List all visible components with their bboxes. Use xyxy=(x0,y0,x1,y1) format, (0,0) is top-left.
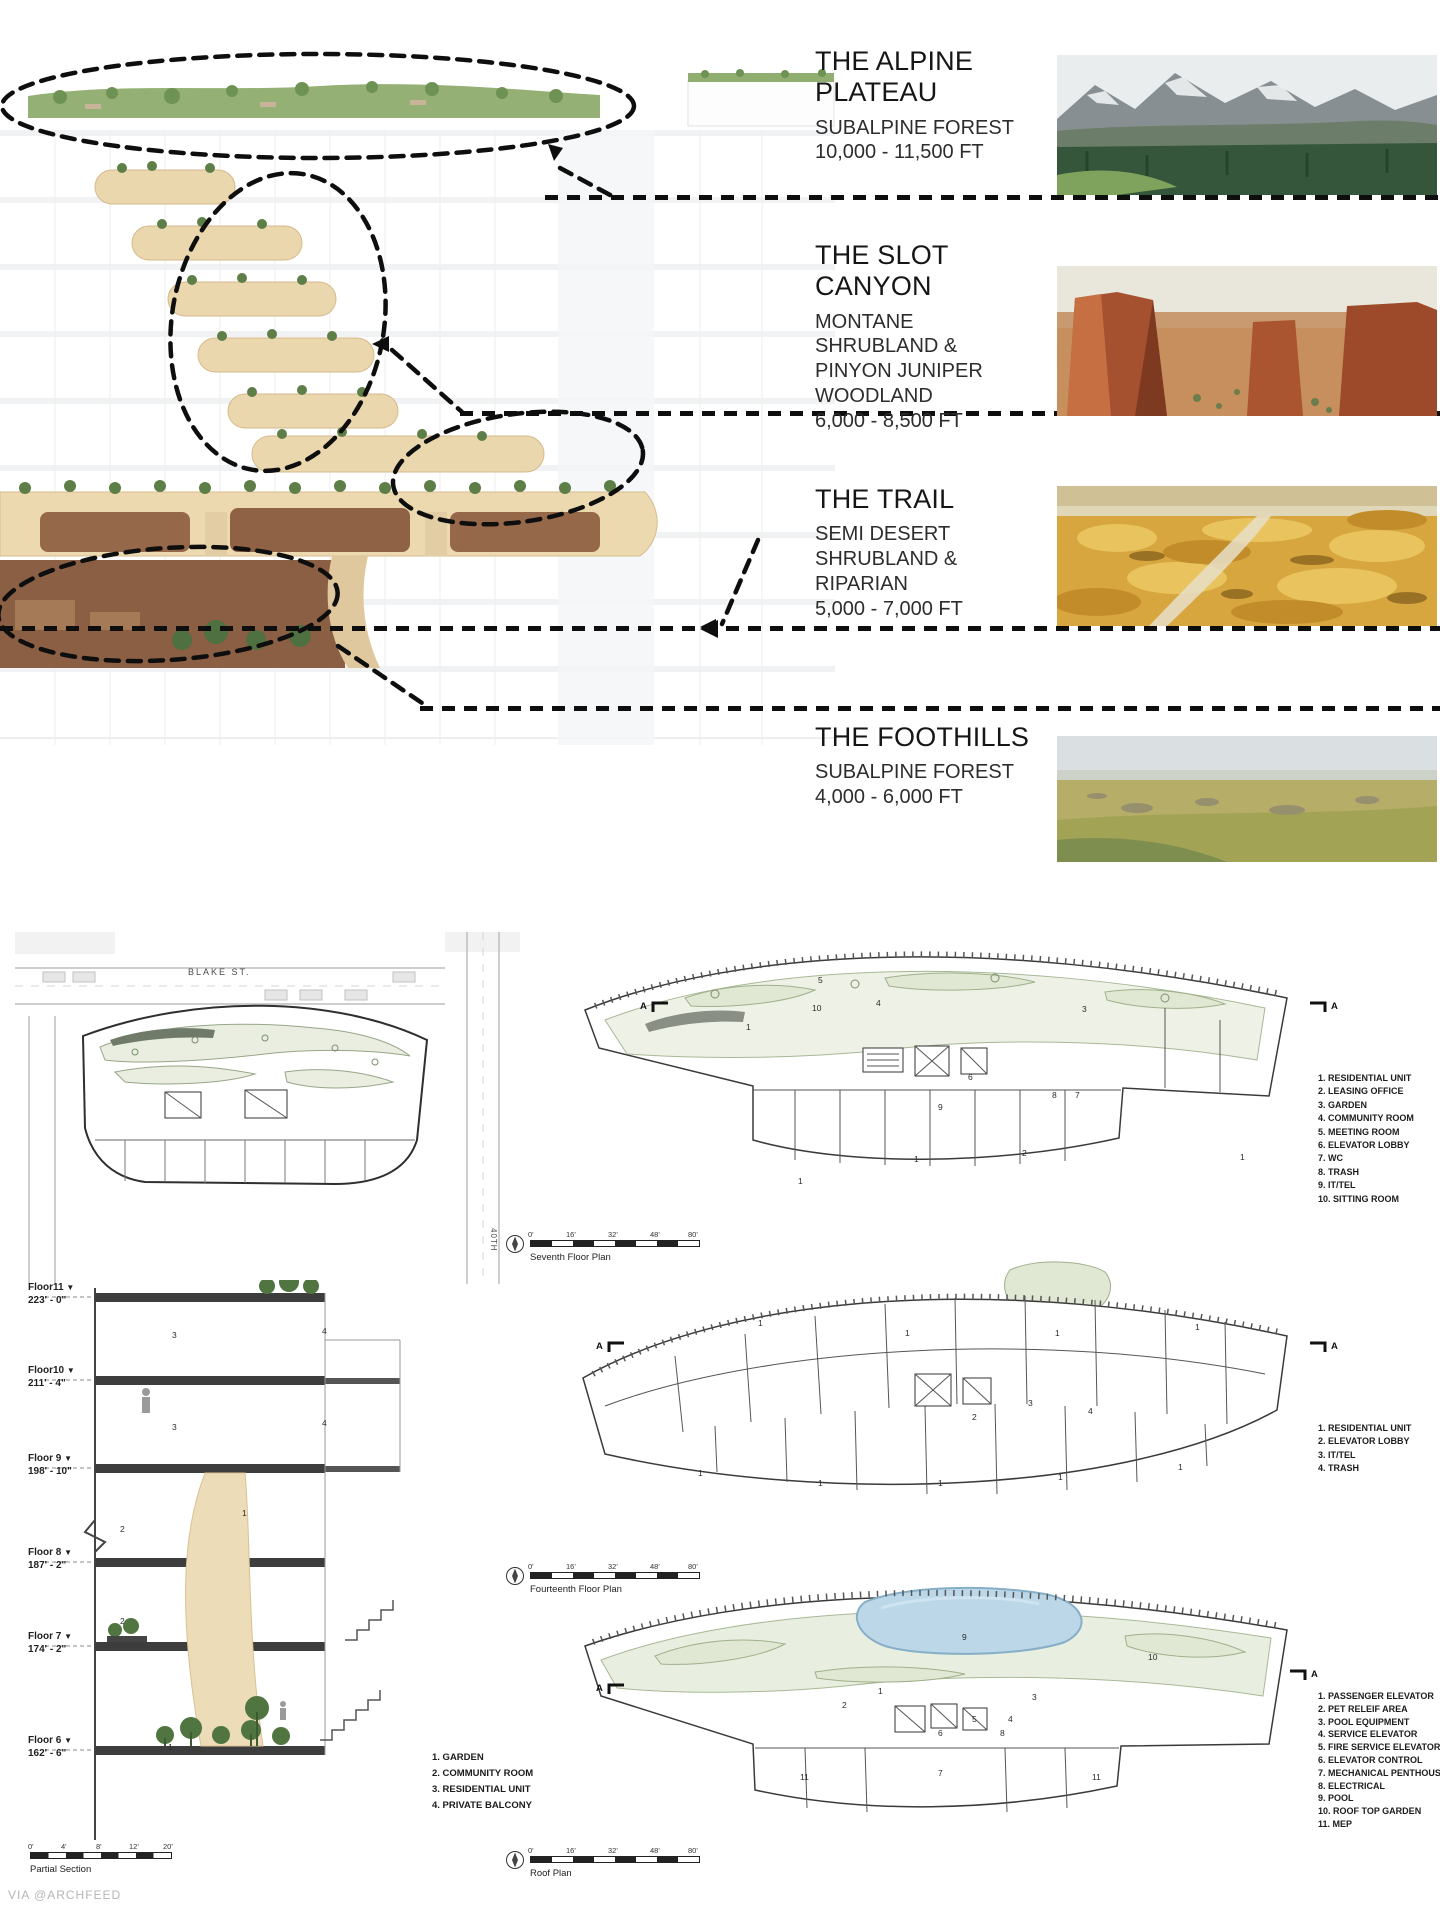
zone-title: THE ALPINE PLATEAU xyxy=(815,46,1033,109)
legend-item: 10. ROOF TOP GARDEN xyxy=(1318,1805,1440,1818)
room-number: 11 xyxy=(1092,1772,1101,1782)
level-marker-icon: ▼ xyxy=(67,1366,75,1375)
floor-name: Floor11 xyxy=(28,1282,64,1293)
zone-elevation: 4,000 - 6,000 FT xyxy=(815,785,1033,810)
scale-tick: 16' xyxy=(566,1230,576,1239)
alpine-plateau-photo xyxy=(1057,55,1437,195)
floor-elevation: 187' - 2" xyxy=(28,1560,66,1571)
section-cut-marker: A xyxy=(596,1340,626,1353)
zone-block-slot-canyon: THE SLOT CANYON MONTANE SHRUBLAND & PINY… xyxy=(815,240,1033,434)
legend-item: 4. COMMUNITY ROOM xyxy=(1318,1112,1440,1125)
zone-divider-line xyxy=(545,195,1440,200)
room-number: 3 xyxy=(1032,1692,1037,1702)
room-number: 1 xyxy=(1240,1152,1245,1162)
watermark: VIA @ARCHFEED xyxy=(8,1888,121,1902)
legend-item: 2. PET RELEIF AREA xyxy=(1318,1703,1440,1716)
roof-plan-drawing xyxy=(565,1576,1305,1838)
fourteenth-plan-legend: 1. RESIDENTIAL UNIT 2. ELEVATOR LOBBY 3.… xyxy=(1318,1422,1440,1476)
room-number: 1 xyxy=(168,1742,173,1752)
room-number: 1 xyxy=(1058,1472,1063,1482)
section-cut-bracket-icon xyxy=(606,1340,626,1353)
scale-tick: 0' xyxy=(528,1562,534,1571)
floor-elevation: 223' - 0" xyxy=(28,1295,66,1306)
zone-subtitle: MONTANE SHRUBLAND & PINYON JUNIPER WOODL… xyxy=(815,310,1033,409)
room-number: 1 xyxy=(914,1154,919,1164)
roof-garden-right xyxy=(688,69,834,126)
room-number: 6 xyxy=(968,1072,973,1082)
room-number: 5 xyxy=(972,1714,977,1724)
section-scale-ticks: 0' 4' 8' 12' 20' xyxy=(30,1842,220,1852)
scale-tick: 80' xyxy=(688,1230,698,1239)
level-marker-icon: ▼ xyxy=(64,1736,72,1745)
site-plan-drawing xyxy=(15,932,520,1284)
legend-item: 9. POOL xyxy=(1318,1792,1440,1805)
room-number: 4 xyxy=(1008,1714,1013,1724)
room-number: 3 xyxy=(1028,1398,1033,1408)
marker-letter: A xyxy=(596,1341,603,1352)
legend-item: 8. TRASH xyxy=(1318,1166,1440,1179)
room-number: 3 xyxy=(1082,1004,1087,1014)
room-number: 4 xyxy=(322,1418,327,1428)
level-marker-icon: ▼ xyxy=(64,1454,72,1463)
plan-scale-ticks: 0' 16' 32' 48' 80' xyxy=(530,1230,720,1240)
floor-name: Floor 7 xyxy=(28,1631,61,1642)
presentation-board: THE ALPINE PLATEAU SUBALPINE FOREST 10,0… xyxy=(0,0,1440,1920)
zone-title: THE TRAIL xyxy=(815,484,1033,515)
floor-elevation: 211' - 4" xyxy=(28,1378,66,1389)
zone-block-trail: THE TRAIL SEMI DESERT SHRUBLAND & RIPARI… xyxy=(815,484,1033,622)
marker-letter: A xyxy=(596,1683,603,1694)
floor-label: Floor11 ▼ 223' - 0" xyxy=(28,1281,123,1307)
plan-scale-bar xyxy=(530,1856,700,1863)
section-cut-marker: A xyxy=(640,1000,670,1013)
section-cut-bracket-icon xyxy=(650,1000,670,1013)
fourteenth-floor-plan-drawing xyxy=(565,1256,1305,1552)
room-number: 2 xyxy=(842,1700,847,1710)
legend-item: 4. SERVICE ELEVATOR xyxy=(1318,1728,1440,1741)
room-number: 1 xyxy=(746,1022,751,1032)
room-number: 6 xyxy=(938,1728,943,1738)
legend-item: 4. TRASH xyxy=(1318,1462,1440,1475)
legend-item: 1. GARDEN xyxy=(432,1750,582,1766)
room-number: 2 xyxy=(120,1524,125,1534)
plan-title: Roof Plan xyxy=(530,1868,572,1879)
scale-tick: 80' xyxy=(688,1562,698,1571)
zone-subtitle: SUBALPINE FOREST xyxy=(815,760,1033,785)
scale-tick: 48' xyxy=(650,1562,660,1571)
room-number: 1 xyxy=(905,1328,910,1338)
street-label-blake: BLAKE ST. xyxy=(188,967,251,977)
legend-item: 5. MEETING ROOM xyxy=(1318,1126,1440,1139)
plan-scale-bar xyxy=(530,1240,700,1247)
north-compass-icon xyxy=(505,1850,525,1870)
zone-title: THE SLOT CANYON xyxy=(815,240,1033,303)
scale-tick: 0' xyxy=(528,1230,534,1239)
stairs xyxy=(320,1600,393,1740)
slot-canyon-photo xyxy=(1057,266,1437,416)
room-number: 2 xyxy=(1022,1148,1027,1158)
section-cut-bracket-icon xyxy=(606,1682,626,1695)
scale-tick: 16' xyxy=(566,1846,576,1855)
legend-item: 7. WC xyxy=(1318,1152,1440,1165)
leader-arrow-icon xyxy=(700,619,716,635)
scale-tick: 20' xyxy=(163,1842,173,1851)
floor-elevation: 162' - 6" xyxy=(28,1748,66,1759)
room-number: 1 xyxy=(938,1478,943,1488)
room-number: 7 xyxy=(1075,1090,1080,1100)
building-cutaway-render xyxy=(0,0,835,748)
room-number: 5 xyxy=(818,975,823,985)
roof-plan-legend: 1. PASSENGER ELEVATOR 2. PET RELEIF AREA… xyxy=(1318,1690,1440,1831)
scale-tick: 0' xyxy=(28,1842,34,1851)
section-cut-marker: A xyxy=(596,1682,626,1695)
level-marker-icon: ▼ xyxy=(66,1283,74,1292)
scale-tick: 8' xyxy=(96,1842,102,1851)
room-number: 2 xyxy=(120,1616,125,1626)
legend-item: 5. FIRE SERVICE ELEVATOR xyxy=(1318,1741,1440,1754)
floor-label: Floor10 ▼ 211' - 4" xyxy=(28,1364,123,1390)
marker-letter: A xyxy=(640,1001,647,1012)
legend-item: 8. ELECTRICAL xyxy=(1318,1780,1440,1793)
floor-elevation: 198' - 10" xyxy=(28,1466,72,1477)
section-cut-marker: A xyxy=(1288,1668,1318,1681)
room-number: 9 xyxy=(962,1632,967,1642)
room-number: 10 xyxy=(812,1003,821,1013)
section-cut-bracket-icon xyxy=(1308,1340,1328,1353)
marker-letter: A xyxy=(1331,1341,1338,1352)
legend-item: 6. ELEVATOR LOBBY xyxy=(1318,1139,1440,1152)
legend-item: 7. MECHANICAL PENTHOUSE xyxy=(1318,1767,1440,1780)
section-cut-marker: A xyxy=(1308,1000,1338,1013)
zone-elevation: 10,000 - 11,500 FT xyxy=(815,140,1033,165)
scale-tick: 32' xyxy=(608,1230,618,1239)
legend-item: 10. SITTING ROOM xyxy=(1318,1193,1440,1206)
legend-item: 1. PASSENGER ELEVATOR xyxy=(1318,1690,1440,1703)
scale-tick: 48' xyxy=(650,1230,660,1239)
scale-tick: 80' xyxy=(688,1846,698,1855)
zone-divider-line xyxy=(420,706,1440,711)
scale-tick: 4' xyxy=(61,1842,67,1851)
zone-block-foothills: THE FOOTHILLS SUBALPINE FOREST 4,000 - 6… xyxy=(815,722,1033,810)
legend-item: 3. POOL EQUIPMENT xyxy=(1318,1716,1440,1729)
plan-scale-ticks: 0' 16' 32' 48' 80' xyxy=(530,1562,720,1572)
section-cut-bracket-icon xyxy=(1288,1668,1308,1681)
legend-item: 2. LEASING OFFICE xyxy=(1318,1085,1440,1098)
floor-label: Floor 6 ▼ 162' - 6" xyxy=(28,1734,123,1760)
section-cut-bracket-icon xyxy=(1308,1000,1328,1013)
section-title: Partial Section xyxy=(30,1864,91,1875)
zone-elevation: 6,000 - 8,500 FT xyxy=(815,409,1033,434)
seventh-plan-legend: 1. RESIDENTIAL UNIT 2. LEASING OFFICE 3.… xyxy=(1318,1072,1440,1206)
marker-letter: A xyxy=(1311,1669,1318,1680)
section-legend: 1. GARDEN 2. COMMUNITY ROOM 3. RESIDENTI… xyxy=(432,1750,582,1814)
legend-item: 4. PRIVATE BALCONY xyxy=(432,1798,582,1814)
floor-label: Floor 8 ▼ 187' - 2" xyxy=(28,1546,123,1572)
room-number: 1 xyxy=(878,1686,883,1696)
seventh-floor-plan-drawing xyxy=(565,928,1305,1220)
floor-label: Floor 9 ▼ 198' - 10" xyxy=(28,1452,123,1478)
level-marker-icon: ▼ xyxy=(64,1632,72,1641)
scale-tick: 0' xyxy=(528,1846,534,1855)
floor-name: Floor10 xyxy=(28,1365,64,1376)
floor-name: Floor 8 xyxy=(28,1547,61,1558)
room-number: 4 xyxy=(322,1326,327,1336)
room-number: 3 xyxy=(172,1330,177,1340)
legend-item: 1. RESIDENTIAL UNIT xyxy=(1318,1072,1440,1085)
legend-item: 3. IT/TEL xyxy=(1318,1449,1440,1462)
room-number: 9 xyxy=(938,1102,943,1112)
legend-item: 9. IT/TEL xyxy=(1318,1179,1440,1192)
scale-tick: 32' xyxy=(608,1846,618,1855)
canyon-terraces xyxy=(95,170,544,472)
floor-name: Floor 9 xyxy=(28,1453,61,1464)
room-number: 1 xyxy=(758,1318,763,1328)
scale-tick: 48' xyxy=(650,1846,660,1855)
zone-divider-line xyxy=(0,626,1440,631)
room-number: 4 xyxy=(1088,1406,1093,1416)
scale-tick: 32' xyxy=(608,1562,618,1571)
floor-label: Floor 7 ▼ 174' - 2" xyxy=(28,1630,123,1656)
room-number: 1 xyxy=(1055,1328,1060,1338)
legend-item: 11. MEP xyxy=(1318,1818,1440,1831)
floor-name: Floor 6 xyxy=(28,1735,61,1746)
floor-elevation: 174' - 2" xyxy=(28,1644,66,1655)
foothills-grassland-photo xyxy=(1057,736,1437,862)
room-number: 1 xyxy=(1195,1322,1200,1332)
room-number: 11 xyxy=(800,1772,809,1782)
street-label-40th: 40TH xyxy=(489,1228,498,1252)
room-number: 7 xyxy=(938,1768,943,1778)
room-number: 8 xyxy=(1000,1728,1005,1738)
scale-tick: 16' xyxy=(566,1562,576,1571)
zone-block-alpine-plateau: THE ALPINE PLATEAU SUBALPINE FOREST 10,0… xyxy=(815,46,1033,165)
room-number: 1 xyxy=(818,1478,823,1488)
north-compass-icon xyxy=(505,1566,525,1586)
marker-letter: A xyxy=(1331,1001,1338,1012)
zone-elevation: 5,000 - 7,000 FT xyxy=(815,597,1033,622)
legend-item: 2. COMMUNITY ROOM xyxy=(432,1766,582,1782)
section-scale-bar xyxy=(30,1852,172,1859)
room-number: 1 xyxy=(242,1508,247,1518)
room-number: 1 xyxy=(698,1468,703,1478)
zone-subtitle: SEMI DESERT SHRUBLAND & RIPARIAN xyxy=(815,522,1033,596)
legend-item: 3. RESIDENTIAL UNIT xyxy=(432,1782,582,1798)
zone-title: THE FOOTHILLS xyxy=(815,722,1033,753)
north-compass-icon xyxy=(505,1234,525,1254)
room-number: 2 xyxy=(972,1412,977,1422)
room-number: 4 xyxy=(876,998,881,1008)
level-marker-icon: ▼ xyxy=(64,1548,72,1557)
leader-arrowheads xyxy=(372,144,718,638)
legend-item: 1. RESIDENTIAL UNIT xyxy=(1318,1422,1440,1435)
legend-item: 3. GARDEN xyxy=(1318,1099,1440,1112)
roof-garden xyxy=(28,81,600,118)
section-cut-marker: A xyxy=(1308,1340,1338,1353)
plan-scale-ticks: 0' 16' 32' 48' 80' xyxy=(530,1846,720,1856)
legend-item: 2. ELEVATOR LOBBY xyxy=(1318,1435,1440,1448)
legend-item: 6. ELEVATOR CONTROL xyxy=(1318,1754,1440,1767)
trail-shrubland-photo xyxy=(1057,486,1437,626)
zone-subtitle: SUBALPINE FOREST xyxy=(815,116,1033,141)
scale-tick: 12' xyxy=(129,1842,139,1851)
room-number: 10 xyxy=(1148,1652,1157,1662)
room-number: 8 xyxy=(1052,1090,1057,1100)
room-number: 1 xyxy=(1178,1462,1183,1472)
room-number: 1 xyxy=(798,1176,803,1186)
room-number: 3 xyxy=(172,1422,177,1432)
